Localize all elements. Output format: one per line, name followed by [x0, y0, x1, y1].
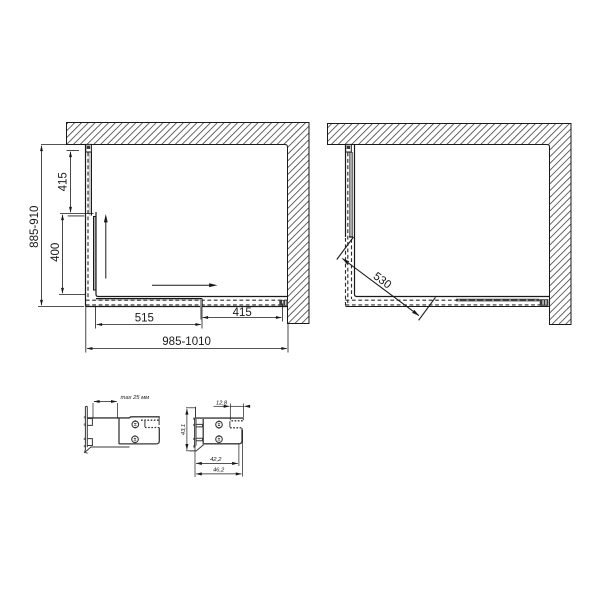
svg-text:46,2: 46,2: [213, 467, 225, 473]
svg-text:515: 515: [135, 313, 154, 325]
svg-text:415: 415: [233, 307, 252, 319]
svg-text:400: 400: [50, 243, 62, 262]
svg-text:985-1010: 985-1010: [162, 336, 211, 348]
svg-text:885-910: 885-910: [29, 206, 41, 248]
svg-text:max 25 мм: max 25 мм: [121, 395, 150, 401]
svg-text:415: 415: [58, 172, 70, 191]
svg-text:43,1: 43,1: [181, 424, 187, 435]
svg-text:42,2: 42,2: [210, 457, 222, 463]
svg-text:12,8: 12,8: [216, 401, 228, 407]
